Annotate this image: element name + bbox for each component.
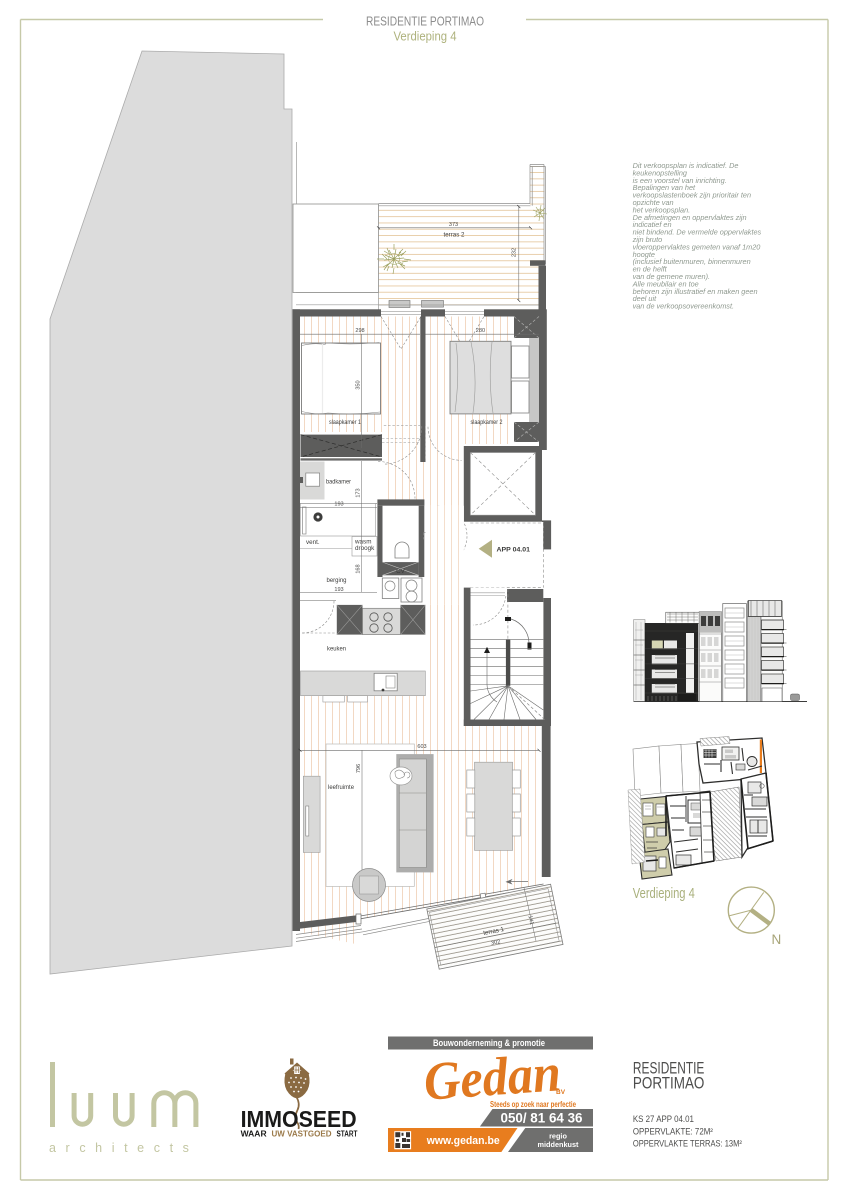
- svg-text:N: N: [772, 932, 782, 947]
- svg-text:IMMOSEED: IMMOSEED: [241, 1106, 357, 1132]
- svg-text:193: 193: [334, 587, 343, 593]
- svg-text:603: 603: [417, 744, 426, 750]
- svg-text:van de verkoopsovereenkomst.: van de verkoopsovereenkomst.: [633, 302, 734, 311]
- svg-text:UW VASTGOED: UW VASTGOED: [272, 1130, 332, 1139]
- svg-text:BV: BV: [556, 1089, 566, 1096]
- svg-text:168: 168: [355, 564, 361, 573]
- svg-text:350: 350: [355, 380, 361, 389]
- svg-text:START: START: [337, 1130, 358, 1139]
- svg-text:badkamer: badkamer: [326, 479, 351, 486]
- svg-text:Steeds op zoek naar perfectie: Steeds op zoek naar perfectie: [490, 1099, 576, 1109]
- svg-text:232: 232: [511, 248, 517, 257]
- svg-text:RESIDENTIE PORTIMAO: RESIDENTIE PORTIMAO: [366, 14, 484, 29]
- svg-text:droogk: droogk: [355, 545, 375, 552]
- svg-text:CV: CV: [396, 568, 406, 575]
- svg-text:373: 373: [449, 222, 458, 228]
- svg-text:slaapkamer 1: slaapkamer 1: [329, 419, 361, 426]
- svg-text:regio: regio: [549, 1131, 567, 1140]
- svg-text:leefruimte: leefruimte: [328, 784, 354, 791]
- svg-text:terras 2: terras 2: [444, 232, 465, 239]
- svg-text:796: 796: [356, 764, 362, 773]
- svg-text:vent.: vent.: [306, 539, 320, 546]
- svg-text:050/ 81 64 36: 050/ 81 64 36: [501, 1110, 583, 1125]
- svg-text:APP 04.01: APP 04.01: [497, 547, 531, 554]
- svg-text:Verdieping 4: Verdieping 4: [394, 29, 457, 44]
- svg-text:280: 280: [476, 328, 485, 334]
- svg-text:OPPERVLAKTE: 72M²: OPPERVLAKTE: 72M²: [633, 1126, 713, 1136]
- svg-text:architects: architects: [49, 1141, 199, 1155]
- svg-text:OPPERVLAKTE TERRAS: 13M²: OPPERVLAKTE TERRAS: 13M²: [633, 1138, 742, 1148]
- svg-text:173: 173: [355, 488, 361, 497]
- svg-text:Verdieping 4: Verdieping 4: [633, 886, 695, 902]
- svg-text:KS 27 APP 04.01: KS 27 APP 04.01: [633, 1114, 694, 1124]
- svg-text:berging: berging: [327, 577, 347, 584]
- svg-text:middenkust: middenkust: [538, 1140, 580, 1149]
- svg-text:www.gedan.be: www.gedan.be: [426, 1135, 500, 1147]
- svg-text:193: 193: [334, 502, 343, 508]
- svg-text:298: 298: [355, 328, 364, 334]
- svg-text:PORTIMAO: PORTIMAO: [633, 1075, 705, 1093]
- svg-text:WAAR: WAAR: [241, 1130, 267, 1139]
- svg-text:keuken: keuken: [327, 646, 346, 653]
- svg-text:slaapkamer 2: slaapkamer 2: [471, 419, 503, 426]
